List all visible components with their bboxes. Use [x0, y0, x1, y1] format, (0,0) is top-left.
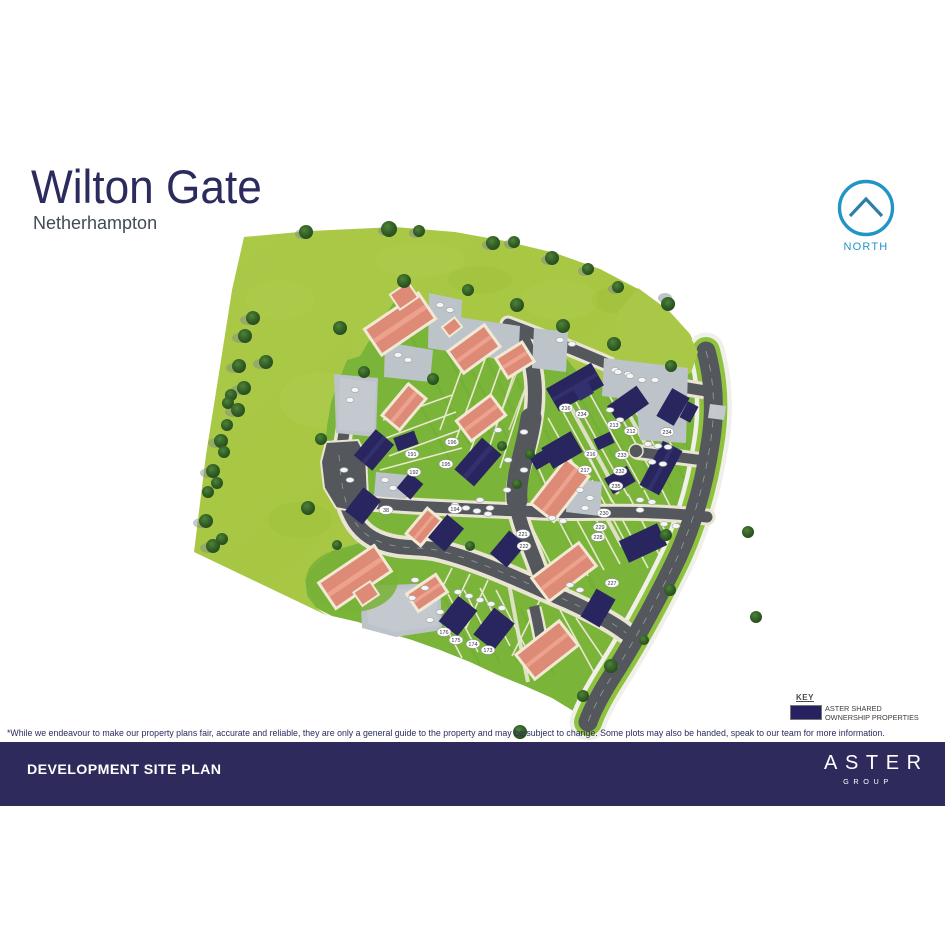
svg-text:222: 222	[519, 544, 528, 550]
svg-text:174: 174	[468, 642, 477, 648]
svg-text:235: 235	[611, 484, 620, 490]
svg-text:216: 216	[586, 452, 595, 458]
svg-text:232: 232	[615, 469, 624, 475]
svg-text:191: 191	[407, 452, 416, 458]
svg-text:38: 38	[383, 508, 389, 514]
svg-text:175: 175	[451, 638, 460, 644]
svg-text:176: 176	[439, 630, 448, 636]
svg-text:234: 234	[662, 430, 671, 436]
svg-text:227: 227	[607, 581, 616, 587]
svg-text:194: 194	[450, 507, 459, 513]
svg-text:217: 217	[580, 468, 589, 474]
svg-text:216: 216	[561, 406, 570, 412]
svg-text:234: 234	[577, 412, 586, 418]
svg-text:213: 213	[609, 423, 618, 429]
svg-text:221: 221	[518, 532, 527, 538]
svg-text:228: 228	[593, 535, 602, 541]
svg-text:233: 233	[617, 453, 626, 459]
svg-text:173: 173	[483, 648, 492, 654]
svg-text:195: 195	[441, 462, 450, 468]
svg-text:212: 212	[626, 429, 635, 435]
svg-text:192: 192	[409, 470, 418, 476]
svg-text:229: 229	[595, 525, 604, 531]
svg-text:230: 230	[599, 511, 608, 517]
svg-text:196: 196	[447, 440, 456, 446]
